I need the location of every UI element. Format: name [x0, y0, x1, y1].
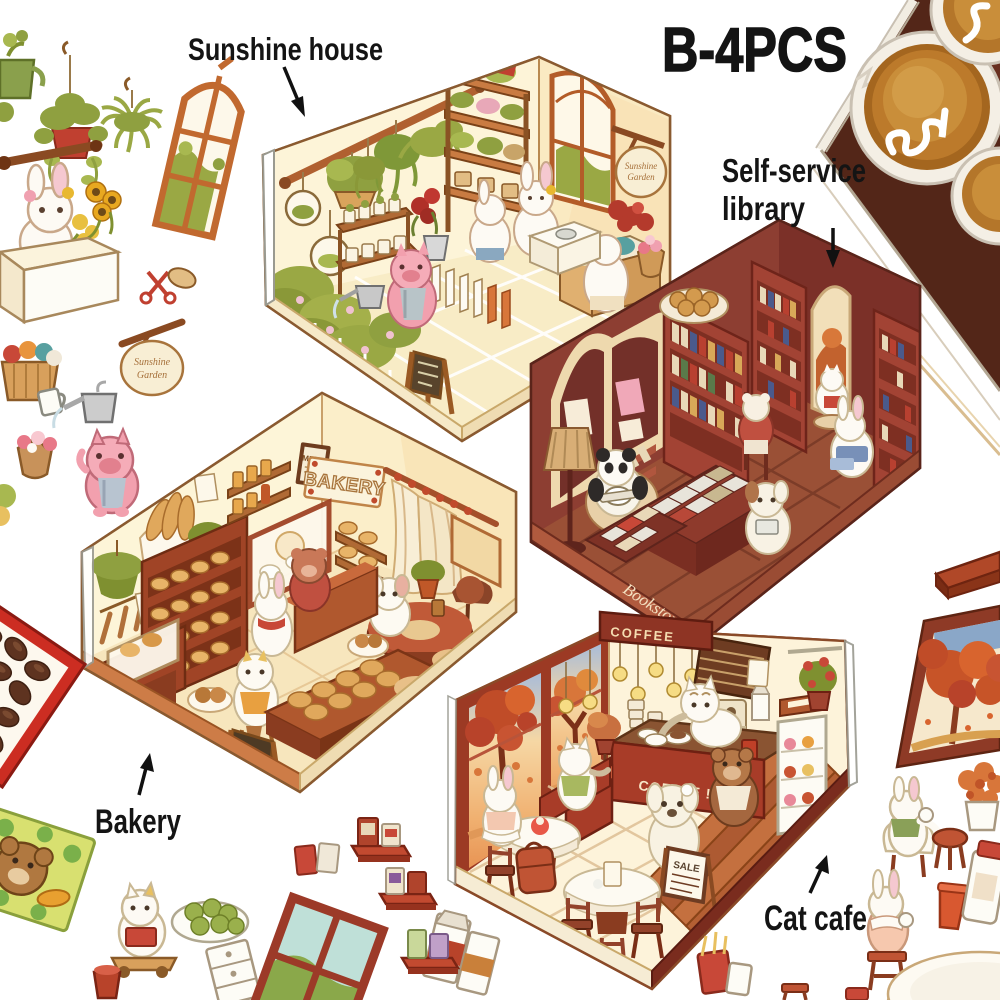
svg-text:Sunshine: Sunshine	[134, 357, 171, 368]
svg-text:Sunshine house: Sunshine house	[188, 31, 383, 67]
svg-text:Self-service: Self-service	[722, 152, 866, 189]
svg-text:B-4PCS: B-4PCS	[662, 16, 847, 85]
svg-text:Cat cafe: Cat cafe	[764, 899, 867, 938]
svg-text:Garden: Garden	[627, 172, 655, 182]
svg-text:Garden: Garden	[137, 370, 167, 381]
svg-text:library: library	[722, 190, 806, 227]
svg-text:Sunshine: Sunshine	[625, 161, 658, 171]
svg-text:Bakery: Bakery	[95, 803, 181, 841]
